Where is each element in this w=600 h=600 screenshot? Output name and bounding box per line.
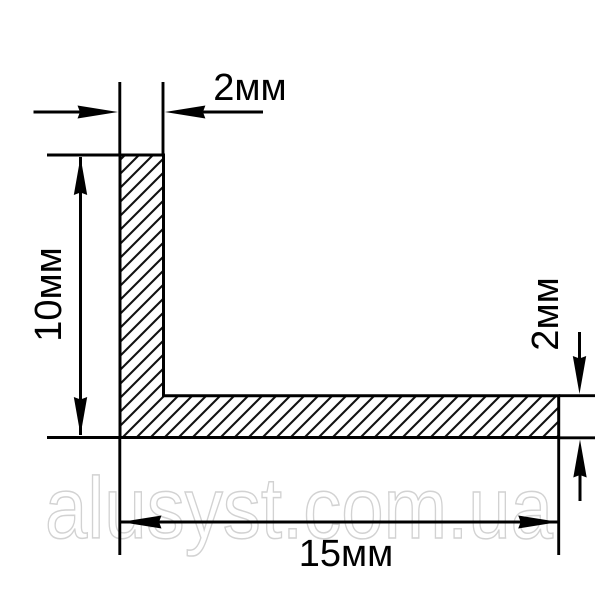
svg-text:2мм: 2мм — [213, 67, 286, 109]
svg-text:2мм: 2мм — [525, 277, 567, 350]
svg-text:10мм: 10мм — [28, 247, 70, 342]
svg-text:15мм: 15мм — [299, 533, 394, 575]
